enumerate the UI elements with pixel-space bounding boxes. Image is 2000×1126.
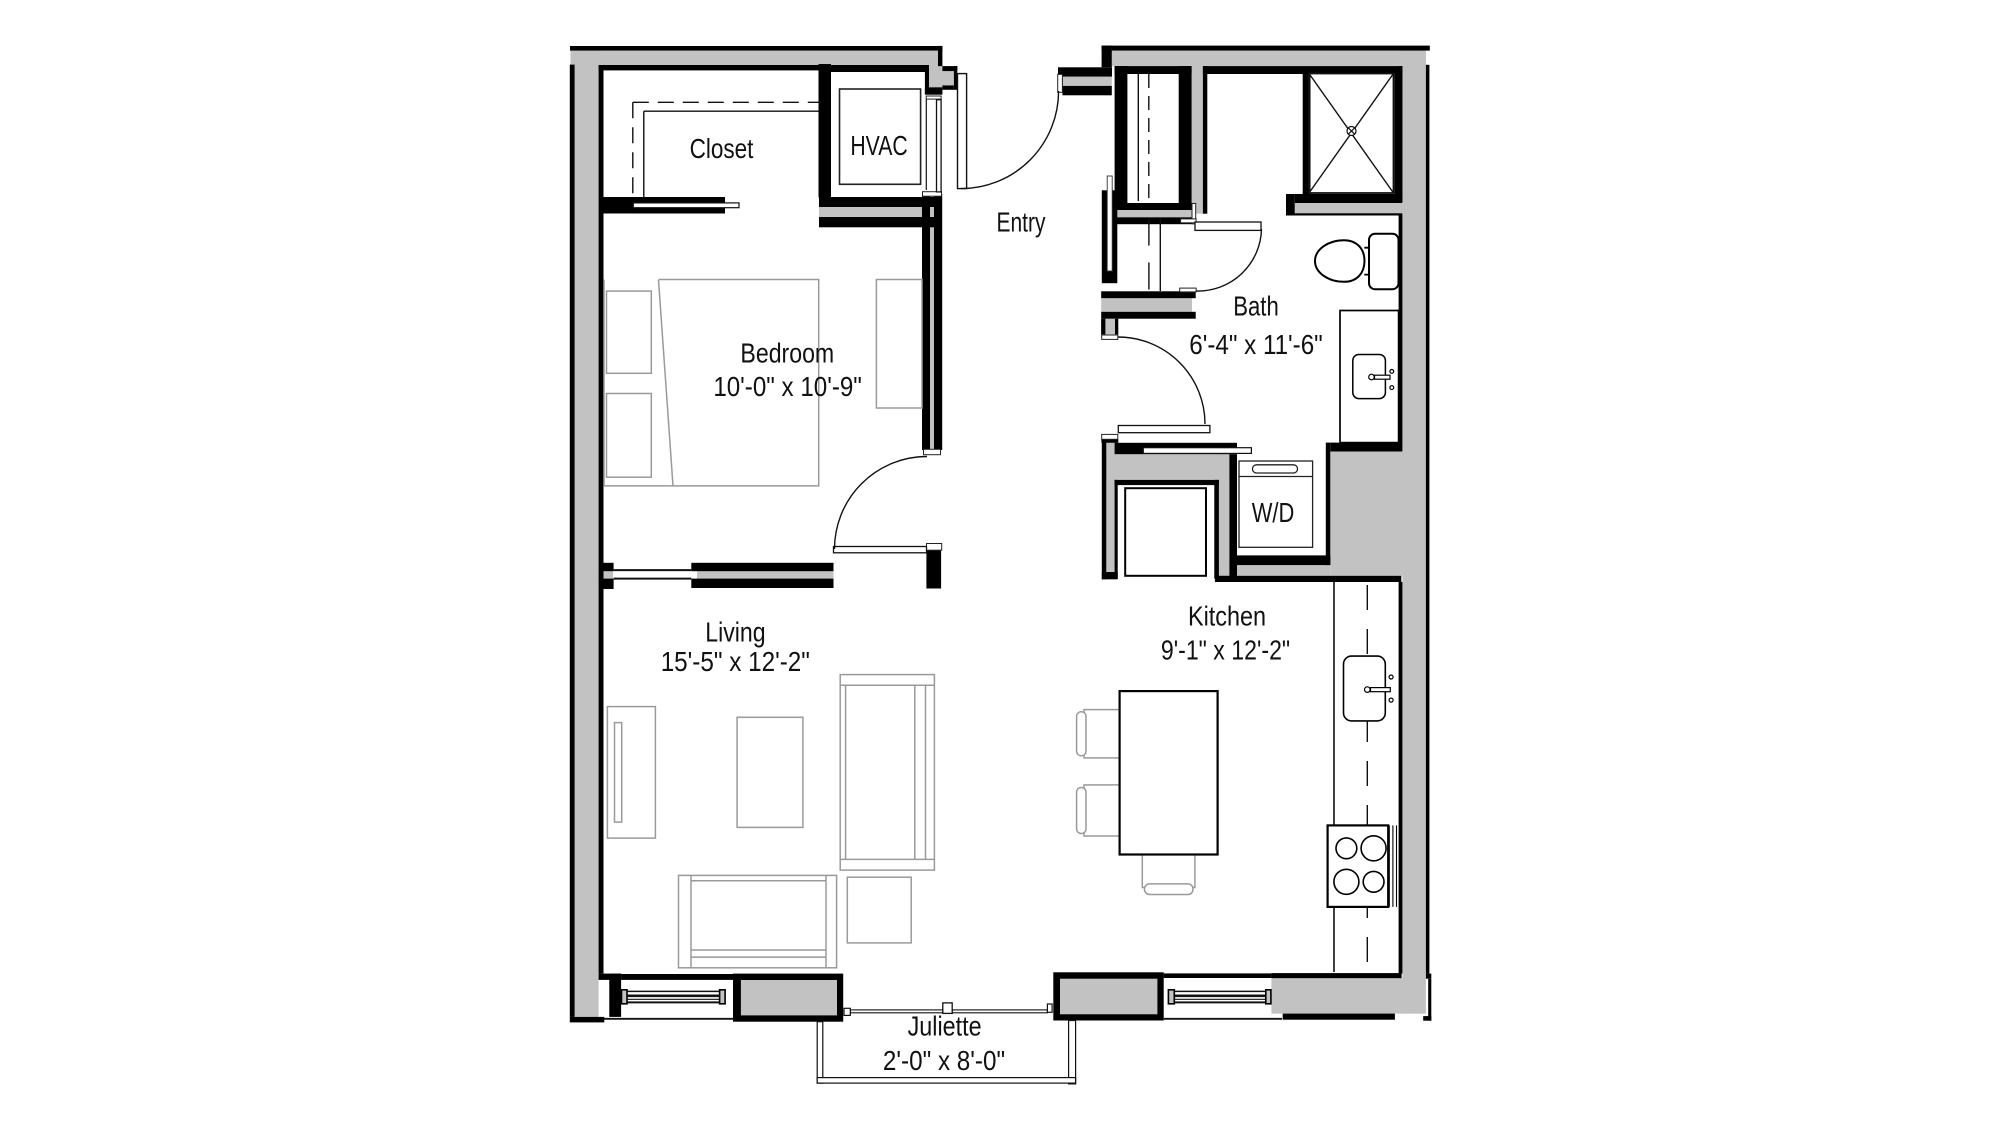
svg-text:6'-4" x 11'-6": 6'-4" x 11'-6" [1189,328,1323,360]
svg-text:9'-1" x 12'-2": 9'-1" x 12'-2" [1161,636,1290,667]
svg-text:15'-5" x 12'-2": 15'-5" x 12'-2" [661,645,810,677]
svg-text:10'-0" x 10'-9": 10'-0" x 10'-9" [713,370,862,402]
svg-text:2'-0" x 8'-0": 2'-0" x 8'-0" [883,1044,1005,1076]
svg-text:Closet: Closet [690,134,754,165]
svg-text:Bath: Bath [1233,291,1278,322]
svg-text:Entry: Entry [997,208,1046,239]
svg-text:Living: Living [705,618,765,649]
svg-text:W/D: W/D [1252,498,1295,529]
svg-text:HVAC: HVAC [850,131,907,161]
svg-text:Bedroom: Bedroom [740,339,834,370]
svg-text:Juliette: Juliette [908,1012,982,1042]
svg-text:Kitchen: Kitchen [1188,602,1266,632]
